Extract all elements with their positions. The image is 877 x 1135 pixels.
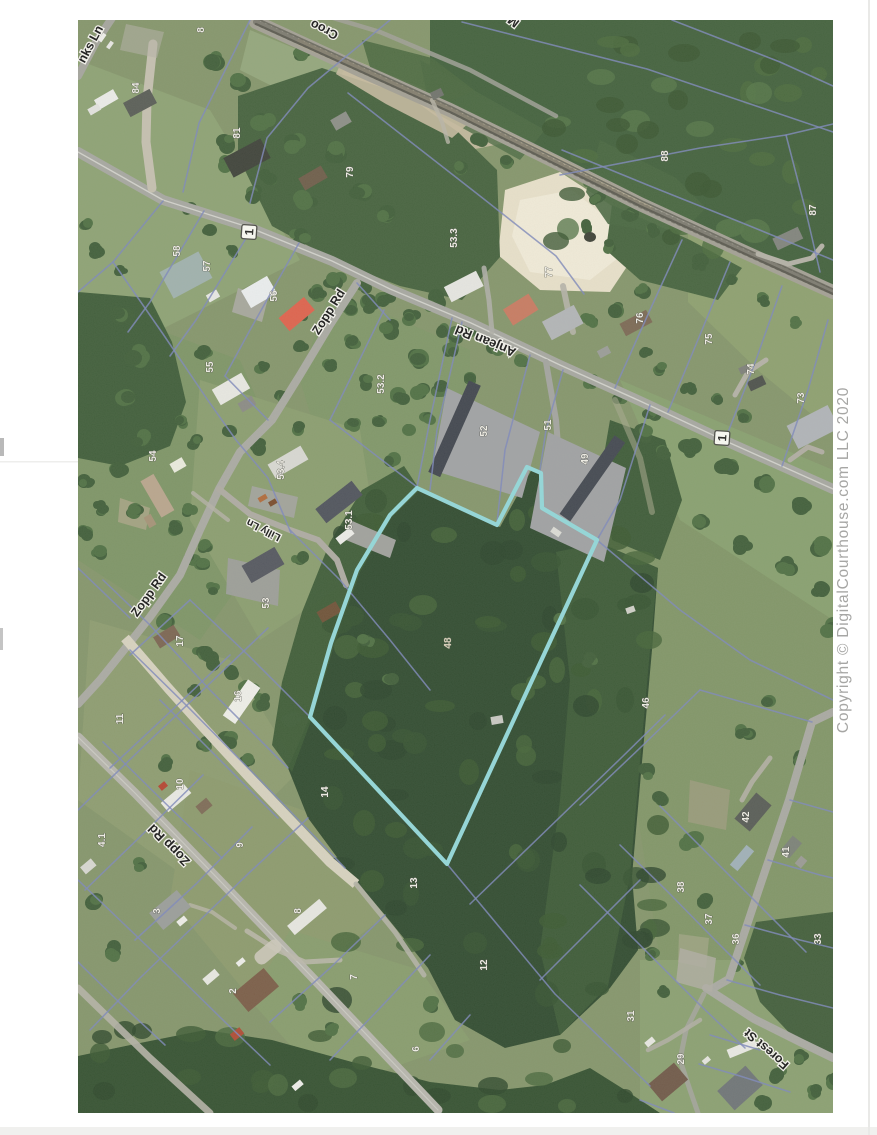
svg-text:Copyright © DigitalCourthouse.: Copyright © DigitalCourthouse.com LLC 20… (835, 387, 852, 733)
